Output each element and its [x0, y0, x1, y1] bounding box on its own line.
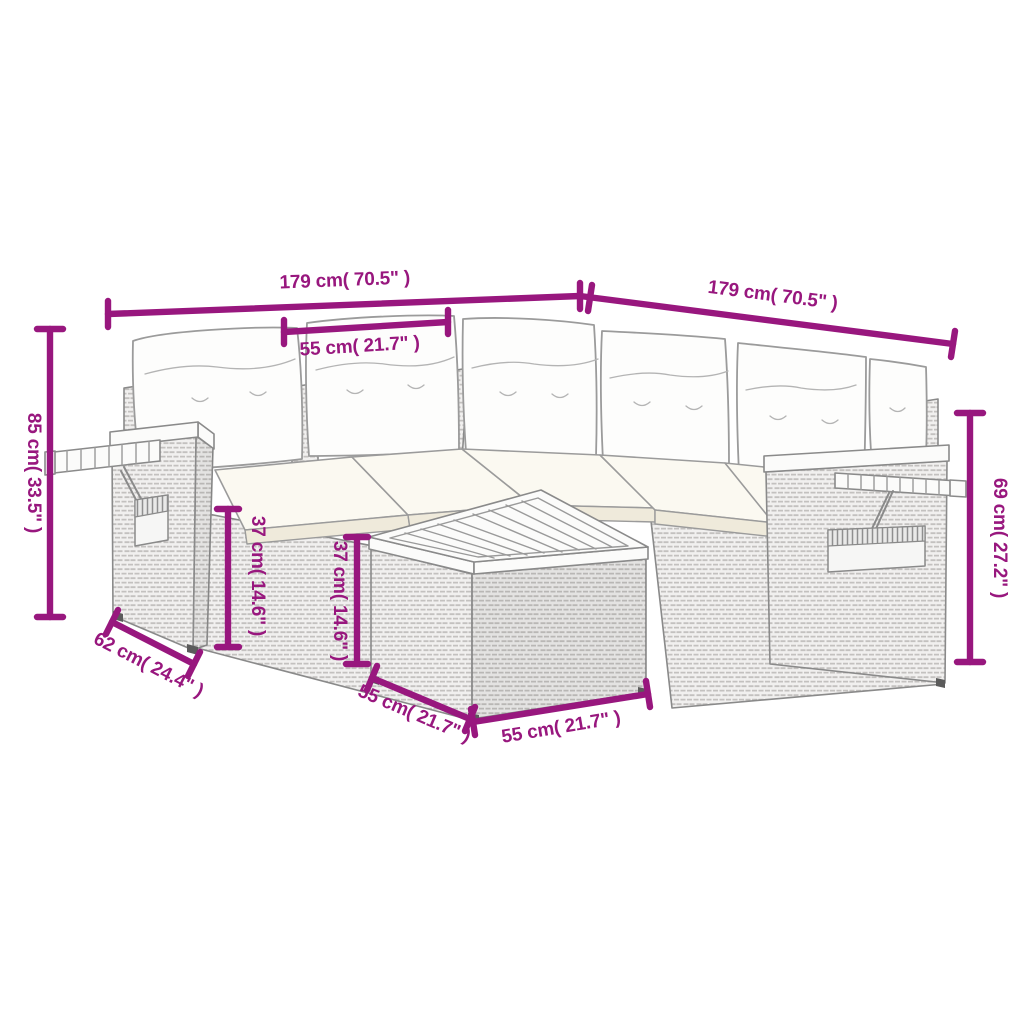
dim-label-total-height: 85 cm( 33.5" ) — [23, 413, 44, 533]
dim-label-seat-height-mid: 37 cm( 14.6" ) — [329, 541, 350, 661]
right-pillow-1 — [601, 331, 729, 468]
sofa-illustration: 179 cm( 70.5" ) 179 cm( 70.5" ) 55 cm( 2… — [0, 0, 1024, 1024]
corner-pillow — [463, 318, 598, 457]
right-pillow-3 — [869, 359, 926, 457]
dim-back-height: 69 cm( 27.2" ) — [957, 413, 1010, 662]
dim-label-width-left: 179 cm( 70.5" ) — [279, 268, 410, 294]
dim-label-back-height: 69 cm( 27.2" ) — [989, 478, 1010, 598]
dim-label-width-right: 179 cm( 70.5" ) — [707, 277, 839, 314]
left-armrest — [45, 422, 214, 650]
right-armrest — [764, 445, 966, 683]
dimension-diagram: 179 cm( 70.5" ) 179 cm( 70.5" ) 55 cm( 2… — [0, 0, 1024, 1024]
dim-label-seat-height-front: 37 cm( 14.6" ) — [247, 516, 268, 636]
